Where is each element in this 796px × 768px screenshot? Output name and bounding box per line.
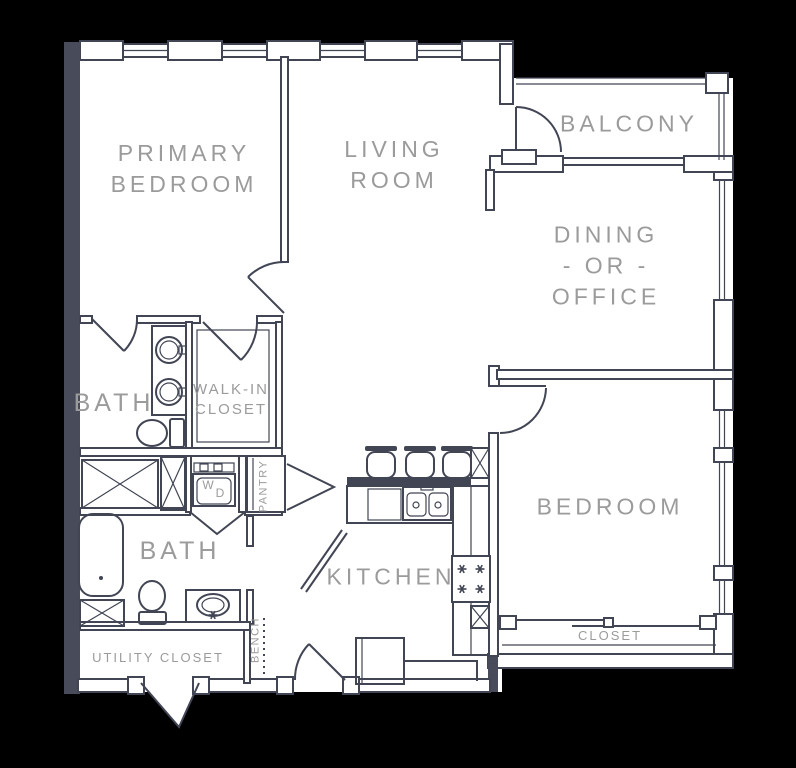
walk-in-closet-label: WALK-IN CLOSET xyxy=(193,380,269,421)
bench-label: BENCH xyxy=(249,617,264,663)
utility-closet-label: UTILITY CLOSET xyxy=(92,649,224,667)
primary-bath-label: BATH xyxy=(74,387,155,421)
floor-plan: PRIMARY BEDROOM LIVING ROOM BALCONY DINI… xyxy=(0,0,796,768)
bedroom-label: BEDROOM xyxy=(537,491,684,522)
range xyxy=(452,556,490,602)
dining-or-office-label: DINING - OR - OFFICE xyxy=(552,219,660,312)
pantry-label: PANTRY xyxy=(257,460,272,513)
primary-bedroom-label: PRIMARY BEDROOM xyxy=(111,138,258,200)
bedroom-closet-label: CLOSET xyxy=(578,627,642,645)
balcony-label: BALCONY xyxy=(560,108,698,139)
washer-label: W xyxy=(202,477,213,493)
dryer-label: D xyxy=(216,485,225,501)
second-bath-label: BATH xyxy=(140,535,221,569)
living-room-label: LIVING ROOM xyxy=(344,134,443,196)
kitchen-label: KITCHEN xyxy=(327,561,456,592)
